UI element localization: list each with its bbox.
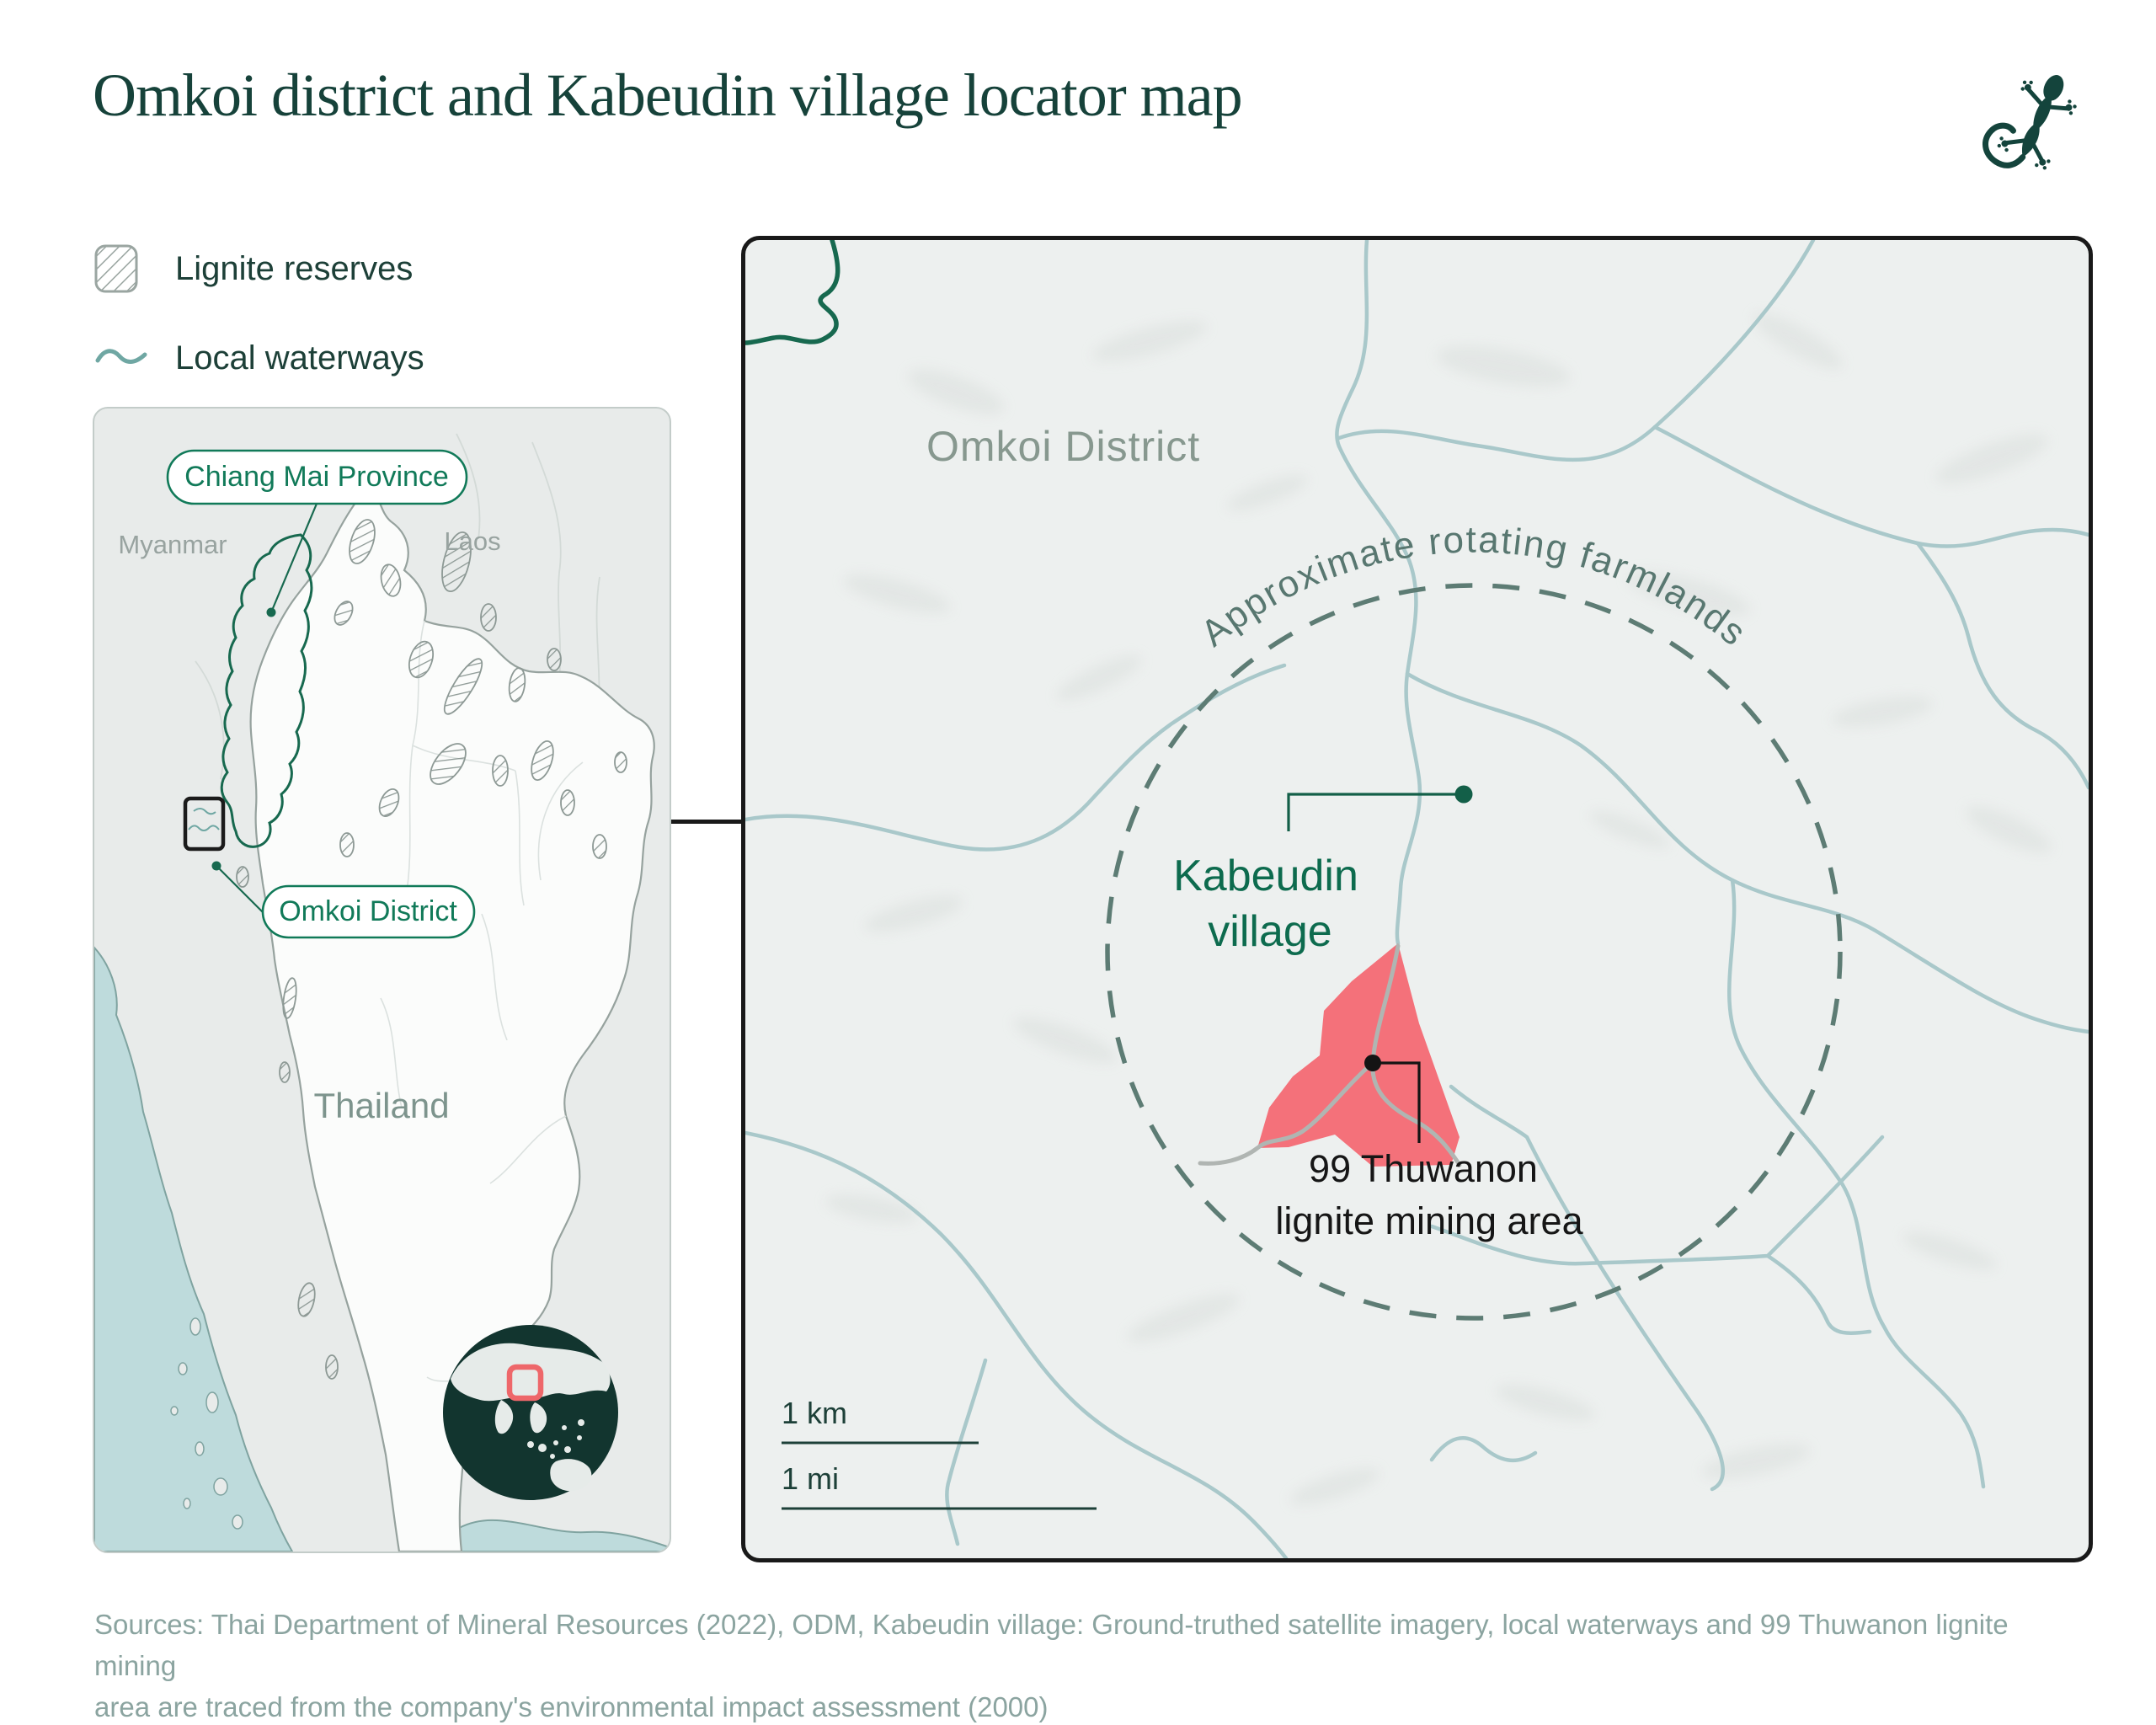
village-label-line2: village xyxy=(1208,907,1331,956)
mining-area-polygon xyxy=(1257,943,1460,1167)
village-annotation: Kabeudin village xyxy=(1173,786,1472,957)
mine-label-line2: lignite mining area xyxy=(1275,1199,1583,1242)
svg-text:Approximate rotating farmlands: Approximate rotating farmlands xyxy=(1193,519,1754,654)
scale-bars: 1 km 1 mi xyxy=(782,1396,1097,1509)
scale-mi-label: 1 mi xyxy=(782,1461,839,1496)
legend-item-lignite: Lignite reserves xyxy=(94,243,424,295)
mine-label-line1: 99 Thuwanon xyxy=(1309,1147,1538,1190)
detail-map-panel: Approximate rotating farmlands Omkoi Dis… xyxy=(741,236,2093,1562)
sources-line1: Sources: Thai Department of Mineral Reso… xyxy=(94,1604,2082,1686)
waterway-wave-icon xyxy=(94,345,148,371)
district-locator-box xyxy=(185,798,223,849)
farmlands-arc-label: Approximate rotating farmlands xyxy=(1193,519,1754,654)
sources-line2: area are traced from the company's envir… xyxy=(94,1686,2082,1725)
infographic-root: Omkoi district and Kabeudin village loca… xyxy=(0,0,2156,1725)
globe-inset xyxy=(443,1325,618,1500)
page-title: Omkoi district and Kabeudin village loca… xyxy=(93,61,1242,131)
chiang-mai-callout-label: Chiang Mai Province xyxy=(184,461,449,493)
legend-label-lignite: Lignite reserves xyxy=(175,250,413,288)
terrain-shading xyxy=(824,304,2056,1512)
boundary-river xyxy=(745,240,838,343)
omkoi-streams xyxy=(189,809,219,830)
scale-km-label: 1 km xyxy=(782,1396,847,1430)
thailand-label: Thailand xyxy=(313,1086,449,1125)
myanmar-label: Myanmar xyxy=(118,530,227,559)
detail-district-label: Omkoi District xyxy=(926,423,1200,470)
lignite-hatch-icon xyxy=(94,244,138,293)
legend: Lignite reserves Local waterways xyxy=(94,243,424,421)
village-label-line1: Kabeudin xyxy=(1173,852,1358,900)
sources-note: Sources: Thai Department of Mineral Reso… xyxy=(94,1604,2082,1725)
gecko-icon xyxy=(1971,74,2097,184)
overview-map-panel: Chiang Mai Province Omkoi District Myanm… xyxy=(93,407,671,1553)
legend-item-waterways: Local waterways xyxy=(94,332,424,384)
omkoi-callout-label: Omkoi District xyxy=(279,895,457,927)
laos-label: Laos xyxy=(444,526,500,556)
legend-label-waterways: Local waterways xyxy=(175,339,424,377)
